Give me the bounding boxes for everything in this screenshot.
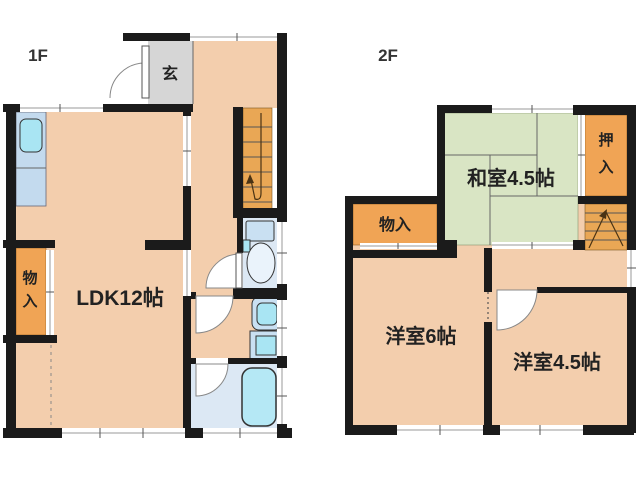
bathtub-icon bbox=[242, 368, 276, 426]
genkan-label: 玄 bbox=[162, 64, 178, 83]
window bbox=[203, 428, 277, 438]
sliding-door bbox=[183, 116, 191, 186]
window bbox=[492, 105, 573, 113]
window bbox=[62, 428, 185, 438]
sliding-door bbox=[578, 115, 585, 196]
entrance-door bbox=[110, 46, 149, 98]
storage-1f bbox=[16, 248, 46, 335]
hall-floor bbox=[193, 41, 277, 108]
oshiire-closet bbox=[585, 115, 627, 196]
window bbox=[397, 425, 483, 435]
yoshitsu45-label: 洋室4.5帖 bbox=[513, 350, 601, 374]
kitchen-sink-icon bbox=[20, 119, 42, 152]
floor-plan-page: 1F bbox=[0, 0, 640, 480]
window bbox=[500, 425, 583, 435]
sliding-door bbox=[46, 250, 54, 335]
sliding-door bbox=[360, 243, 437, 249]
oshiire-label-2: 入 bbox=[598, 159, 613, 176]
floor-plan-drawing: 1F bbox=[0, 0, 640, 480]
floor2-label: 2F bbox=[378, 46, 398, 65]
washing-machine-icon bbox=[250, 331, 280, 359]
window bbox=[20, 104, 103, 112]
storage-1f-label-2: 入 bbox=[22, 293, 37, 310]
ldk-label: LDK12帖 bbox=[76, 287, 164, 310]
window bbox=[190, 33, 277, 41]
floor1-plan: 1F bbox=[3, 33, 292, 438]
window bbox=[277, 300, 287, 356]
oshiire-label-1: 押 bbox=[598, 131, 613, 149]
window bbox=[277, 222, 287, 284]
sliding-door bbox=[183, 250, 191, 296]
stairs-1f bbox=[243, 108, 272, 210]
sliding-door bbox=[492, 242, 573, 249]
storage-2f-label: 物入 bbox=[379, 215, 411, 234]
window bbox=[627, 250, 636, 287]
floor1-label: 1F bbox=[28, 46, 48, 65]
storage-1f-label-1: 物 bbox=[22, 269, 37, 287]
floor2-plan: 2F bbox=[345, 46, 636, 435]
washitsu-label: 和室4.5帖 bbox=[467, 166, 555, 190]
yoshitsu6-label: 洋室6帖 bbox=[385, 324, 456, 348]
window bbox=[277, 368, 287, 424]
